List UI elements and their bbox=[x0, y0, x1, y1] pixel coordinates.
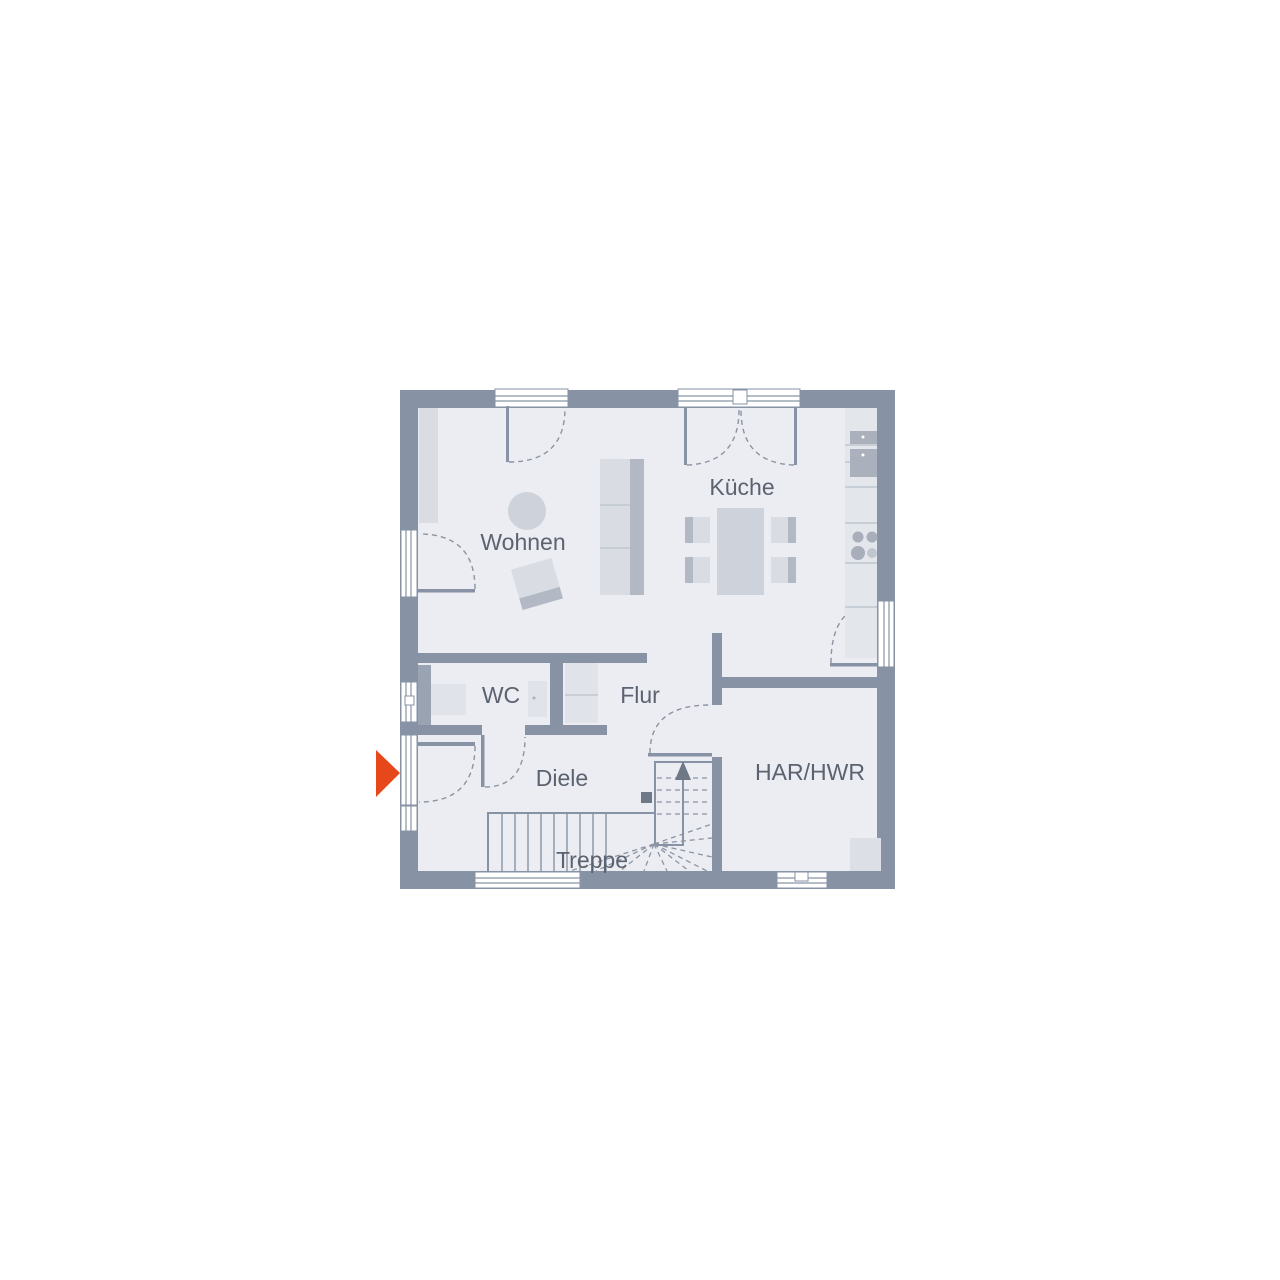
utility-equipment bbox=[850, 838, 881, 871]
window-handle-icon bbox=[795, 872, 808, 881]
sidelight-window bbox=[401, 806, 417, 831]
coffee-table bbox=[508, 492, 546, 530]
living-room-door-leaf bbox=[418, 589, 475, 593]
kitchen-side-door-opening bbox=[878, 601, 894, 667]
entrance-arrow-icon bbox=[376, 750, 400, 797]
stair-post bbox=[641, 792, 652, 803]
room-label-wc: WC bbox=[482, 682, 520, 708]
terrace-door-window bbox=[495, 389, 568, 407]
window-handle-icon bbox=[405, 696, 414, 705]
chair bbox=[685, 517, 710, 543]
wc-vanity bbox=[418, 665, 431, 725]
wc-window bbox=[401, 682, 417, 722]
room-label-wohnen: Wohnen bbox=[480, 529, 565, 555]
entrance-door-leaf bbox=[418, 742, 475, 746]
kitchen-double-door-window bbox=[678, 389, 800, 407]
washbasin bbox=[431, 684, 466, 715]
chair bbox=[771, 517, 796, 543]
utility-door-leaf bbox=[648, 753, 712, 757]
closet bbox=[565, 663, 598, 723]
room-label-kueche: Küche bbox=[709, 474, 774, 500]
kitchen-side-door-leaf bbox=[830, 663, 878, 667]
room-label-diele: Diele bbox=[536, 765, 588, 791]
sofa bbox=[600, 459, 644, 595]
toilet bbox=[528, 681, 547, 717]
kitchen-counter bbox=[845, 408, 878, 658]
kitchen-door-left-leaf bbox=[684, 408, 687, 465]
door-handle-icon bbox=[733, 390, 747, 404]
chair bbox=[685, 557, 710, 583]
sideboard bbox=[419, 408, 438, 523]
entrance-door-opening bbox=[401, 735, 417, 805]
floor-plan: Wohnen Küche WC Flur Diele Treppe HAR/HW… bbox=[0, 0, 1280, 1280]
floor-plan-page: Wohnen Küche WC Flur Diele Treppe HAR/HW… bbox=[0, 0, 1280, 1280]
living-room-door-window bbox=[401, 530, 417, 597]
terrace-door-leaf bbox=[506, 406, 509, 462]
room-label-flur: Flur bbox=[620, 682, 660, 708]
utility-window bbox=[777, 872, 827, 888]
chair bbox=[771, 557, 796, 583]
room-label-har-hwr: HAR/HWR bbox=[755, 759, 865, 785]
wc-door-leaf bbox=[481, 735, 485, 787]
hall-window bbox=[475, 872, 580, 888]
oven-icon bbox=[850, 449, 877, 477]
dining-table bbox=[717, 508, 764, 595]
room-label-treppe: Treppe bbox=[556, 847, 628, 873]
kitchen-door-right-leaf bbox=[794, 408, 797, 465]
floor-area bbox=[408, 398, 887, 879]
